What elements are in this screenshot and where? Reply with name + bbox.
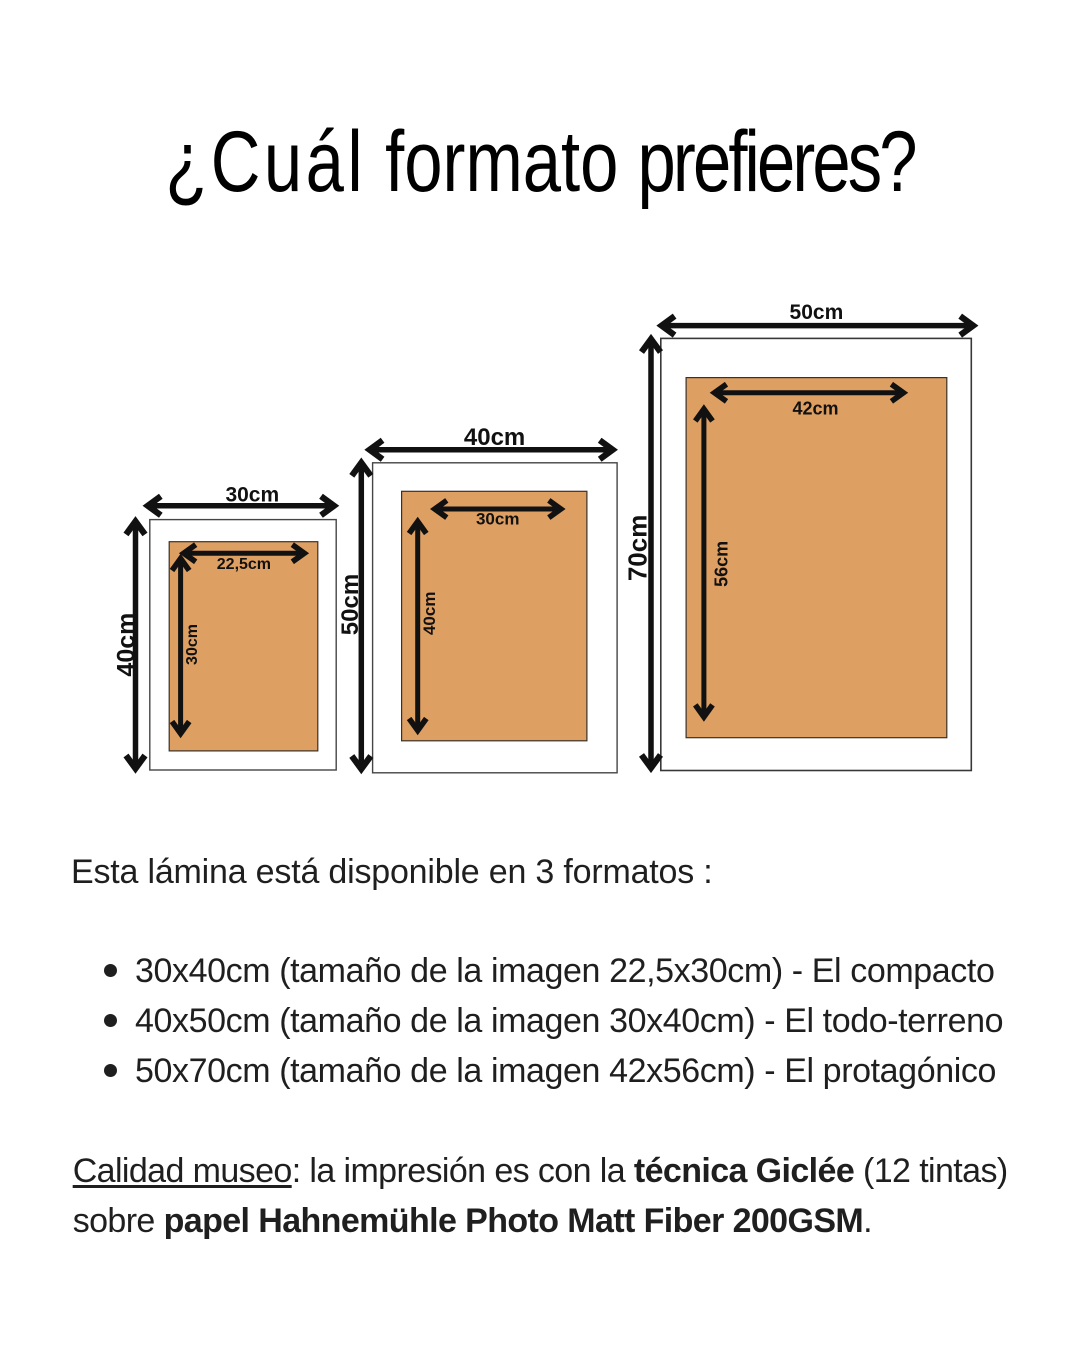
svg-text:30cm: 30cm [225, 483, 279, 506]
svg-text:40cm: 40cm [464, 424, 525, 451]
svg-text:30cm: 30cm [476, 510, 519, 529]
svg-text:22,5cm: 22,5cm [217, 556, 271, 573]
svg-text:50cm: 50cm [337, 574, 364, 635]
svg-text:42cm: 42cm [792, 399, 838, 419]
svg-text:30cm: 30cm [184, 624, 201, 665]
svg-text:56cm: 56cm [712, 541, 732, 587]
svg-text:50cm: 50cm [790, 301, 844, 324]
svg-text:40cm: 40cm [420, 592, 439, 635]
svg-text:40cm: 40cm [112, 613, 140, 677]
svg-text:70cm: 70cm [622, 515, 652, 582]
